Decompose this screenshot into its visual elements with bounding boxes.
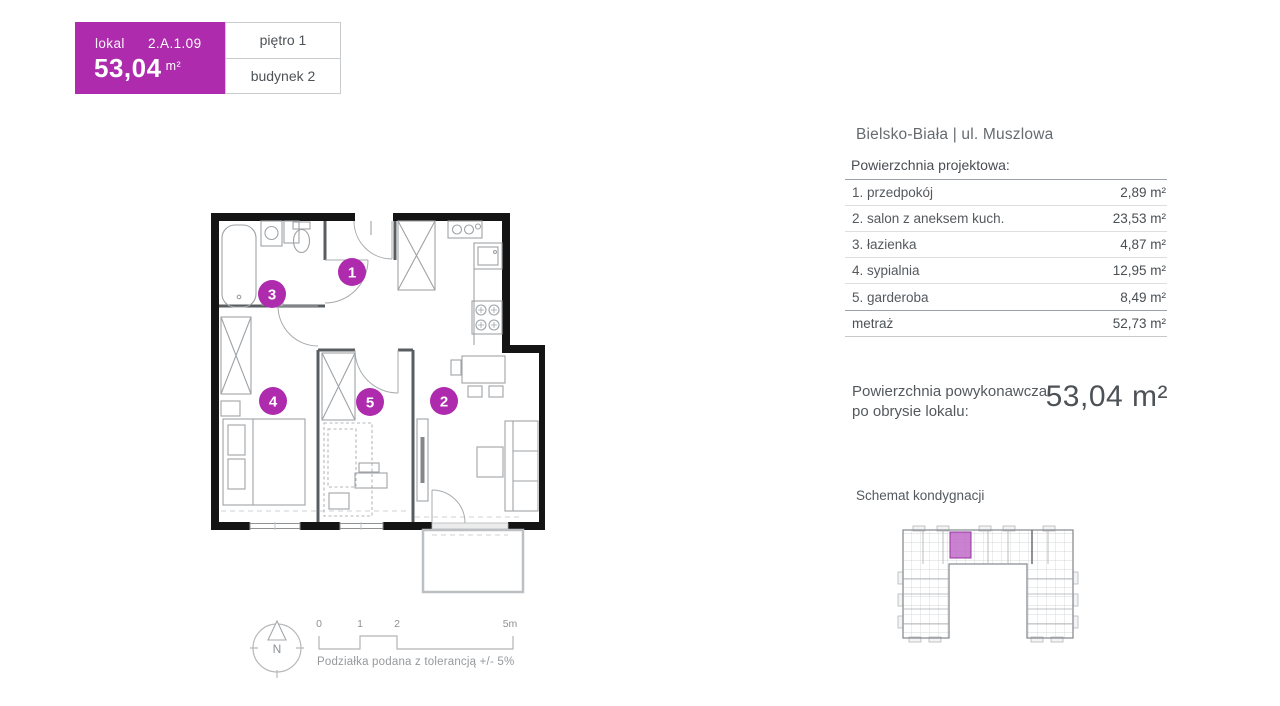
- balcony-outline: [423, 530, 523, 592]
- table-row: 1. przedpokój 2,89 m²: [845, 180, 1167, 206]
- living-room-furniture: [417, 419, 538, 511]
- floor-schematic-title: Schemat kondygnacji: [856, 488, 984, 503]
- as-built-label-line2: po obrysie lokalu:: [852, 402, 1047, 422]
- building-floor-schematic: [893, 524, 1083, 644]
- unit-area-unit: m²: [166, 59, 182, 73]
- room-marker-5: 5: [356, 388, 384, 416]
- interior-walls: [219, 221, 413, 522]
- room-area: 23,53 m²: [1113, 211, 1166, 226]
- total-area: 52,73 m²: [1113, 316, 1166, 331]
- as-built-value: 53,04 m²: [1046, 380, 1168, 414]
- table-row: 4. sypialnia 12,95 m²: [845, 258, 1167, 284]
- table-total-row: metraż 52,73 m²: [845, 310, 1167, 337]
- scale-tick-2: 2: [394, 618, 400, 630]
- compass-north-label: N: [273, 642, 282, 656]
- location-title: Bielsko-Biała | ul. Muszlowa: [856, 126, 1053, 144]
- room-label: 5. garderoba: [852, 290, 929, 305]
- room-label: 1. przedpokój: [852, 185, 933, 200]
- floor-label: piętro 1: [226, 23, 340, 58]
- unit-area: 53,04m²: [94, 53, 181, 84]
- scale-bar: 0 1 2 5m: [310, 616, 525, 656]
- room-label: 4. sypialnia: [852, 263, 920, 278]
- floor-plan-drawing: 1 2 3 4 5: [205, 205, 545, 600]
- scale-tick-0: 0: [316, 618, 322, 630]
- balcony-threshold: [432, 523, 508, 529]
- north-arrow-icon: [268, 621, 286, 640]
- lokal-label: lokal: [95, 36, 125, 51]
- room-label: 2. salon z aneksem kuch.: [852, 211, 1004, 226]
- apartment-card-page: lokal 2.A.1.09 53,04m² piętro 1 budynek …: [0, 0, 1280, 706]
- table-row: 5. garderoba 8,49 m²: [845, 284, 1167, 310]
- unit-area-value: 53,04: [94, 53, 162, 83]
- room-marker-3: 3: [258, 280, 286, 308]
- room-area: 8,49 m²: [1120, 290, 1166, 305]
- unit-number-badge: lokal 2.A.1.09 53,04m²: [75, 22, 225, 94]
- as-built-label-line1: Powierzchnia powykonawcza: [852, 382, 1047, 402]
- room-marker-2-number: 2: [440, 394, 448, 411]
- outer-walls: [211, 213, 545, 530]
- compass-rose: N: [249, 616, 309, 680]
- room-markers: 1 2 3 4 5: [258, 258, 458, 416]
- room-marker-5-number: 5: [366, 395, 374, 412]
- area-table-header: Powierzchnia projektowa:: [845, 157, 1167, 180]
- unit-number: 2.A.1.09: [148, 36, 202, 51]
- garderoba-furniture: [322, 353, 387, 516]
- scale-tick-1: 1: [357, 618, 363, 630]
- floor-building-box: piętro 1 budynek 2: [225, 22, 341, 94]
- room-marker-1-number: 1: [348, 265, 356, 282]
- bedroom-furniture: [221, 317, 305, 505]
- as-built-area-block: Powierzchnia powykonawcza po obrysie lok…: [852, 380, 1168, 426]
- room-area: 4,87 m²: [1120, 237, 1166, 252]
- room-marker-4: 4: [259, 387, 287, 415]
- room-label: 3. łazienka: [852, 237, 917, 252]
- room-marker-4-number: 4: [269, 394, 278, 411]
- building-label: budynek 2: [226, 58, 340, 94]
- scale-tolerance-note: Podziałka podana z tolerancją +/- 5%: [317, 656, 514, 668]
- room-marker-3-number: 3: [268, 287, 276, 304]
- area-table: Powierzchnia projektowa: 1. przedpokój 2…: [845, 157, 1167, 337]
- total-label: metraż: [852, 316, 893, 331]
- scale-tick-5m: 5m: [503, 618, 518, 630]
- room-area: 12,95 m²: [1113, 263, 1166, 278]
- room-marker-2: 2: [430, 387, 458, 415]
- table-row: 2. salon z aneksem kuch. 23,53 m²: [845, 206, 1167, 232]
- table-row: 3. łazienka 4,87 m²: [845, 232, 1167, 258]
- unit-header-card: lokal 2.A.1.09 53,04m² piętro 1 budynek …: [75, 22, 341, 94]
- doors: [278, 221, 465, 523]
- highlighted-unit: [950, 532, 971, 558]
- as-built-label: Powierzchnia powykonawcza po obrysie lok…: [852, 382, 1047, 421]
- room-area: 2,89 m²: [1120, 185, 1166, 200]
- room-marker-1: 1: [338, 258, 366, 286]
